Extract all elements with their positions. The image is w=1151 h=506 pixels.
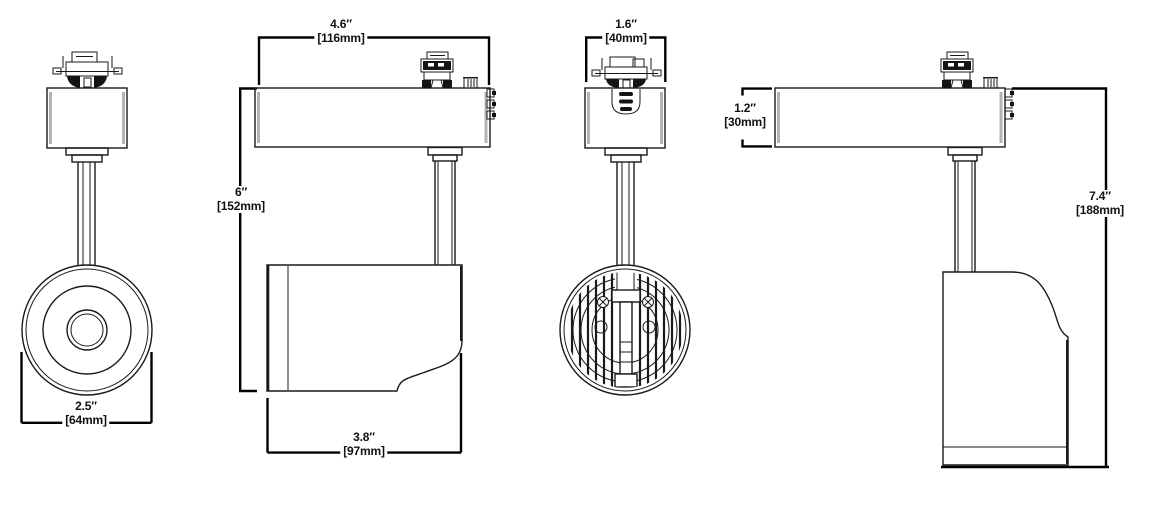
dim-body-height-label: 1.2″ [30mm] [721, 102, 768, 129]
drawing-canvas [0, 0, 1151, 506]
dim-inches: 1.6″ [605, 18, 646, 32]
dim-overall-height-label: 7.4″ [188mm] [1073, 190, 1127, 217]
track-adapter-icon [592, 57, 661, 88]
dim-metric: [64mm] [65, 414, 106, 428]
stem [428, 148, 462, 266]
contact-tabs-icon [487, 89, 496, 119]
dim-inches: 1.2″ [724, 102, 765, 116]
dim-inches: 4.6″ [317, 18, 364, 32]
dimension-drawing: 2.5″ [64mm] 4.6″ [116mm] 6″ [152mm] 3.8″… [0, 0, 1151, 506]
screw-icon [598, 297, 609, 308]
stem [66, 148, 108, 266]
dim-body-length-label: 4.6″ [116mm] [314, 18, 367, 45]
driver-body [47, 88, 127, 148]
stem [605, 148, 647, 266]
track-adapter-icon [53, 52, 122, 88]
dim-overall-height-line [941, 89, 1109, 468]
side-view-head-down [743, 52, 1110, 467]
dim-lens-diameter-label: 2.5″ [64mm] [62, 400, 109, 427]
dim-metric: [97mm] [343, 445, 384, 459]
knob-icon [983, 78, 998, 89]
side-view [240, 38, 496, 453]
front-view [22, 52, 153, 423]
dim-head-length-label: 3.8″ [97mm] [340, 431, 387, 458]
dim-metric: [116mm] [317, 32, 364, 46]
lens-bezel [22, 265, 152, 395]
dim-inches: 2.5″ [65, 400, 106, 414]
dim-metric: [188mm] [1076, 204, 1124, 218]
dim-metric: [152mm] [217, 200, 265, 214]
screw-icon [643, 297, 654, 308]
dim-metric: [30mm] [724, 116, 765, 130]
dim-height-label: 6″ [152mm] [214, 186, 268, 213]
rear-view [560, 38, 690, 396]
dim-inches: 3.8″ [343, 431, 384, 445]
dim-body-length-line [259, 38, 489, 86]
stem [948, 148, 982, 273]
dim-inches: 6″ [217, 186, 265, 200]
vent-slots-icon [612, 89, 640, 114]
knob-icon [463, 78, 478, 89]
lamp-head [943, 272, 1068, 465]
driver-body [775, 88, 1005, 147]
lamp-head [267, 265, 462, 391]
dim-inches: 7.4″ [1076, 190, 1124, 204]
driver-body [255, 88, 490, 147]
driver-body [585, 88, 665, 148]
track-adapter-icon [941, 52, 973, 88]
dim-metric: [40mm] [605, 32, 646, 46]
heatsink [560, 265, 690, 395]
track-adapter-icon [421, 52, 453, 88]
dim-body-width-label: 1.6″ [40mm] [602, 18, 649, 45]
contact-tabs-icon [1005, 89, 1014, 119]
